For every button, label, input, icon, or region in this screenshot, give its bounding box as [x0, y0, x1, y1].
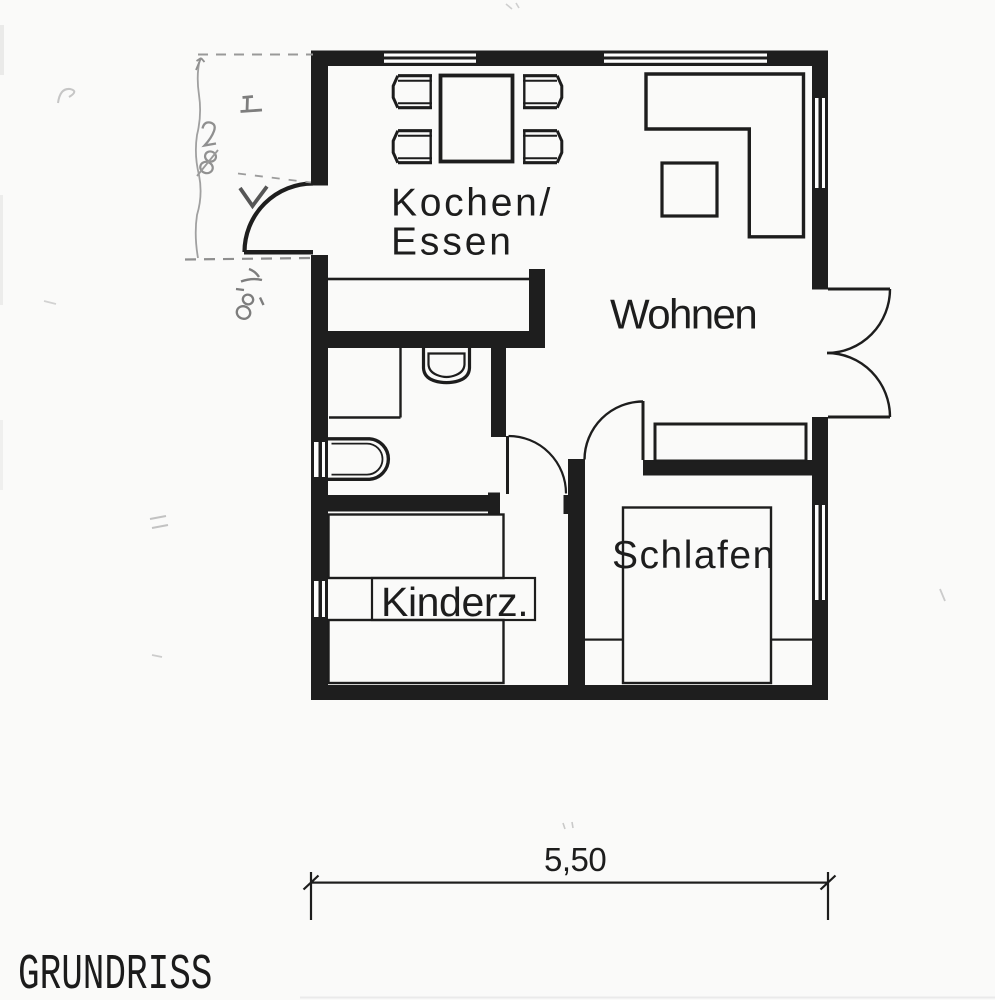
svg-text:5,50: 5,50 [544, 841, 606, 878]
svg-text:Kinderz.: Kinderz. [381, 579, 528, 625]
svg-text:Kochen/: Kochen/ [391, 182, 553, 225]
svg-text:Schlafen: Schlafen [612, 534, 776, 577]
svg-text:Wohnen: Wohnen [610, 291, 756, 338]
svg-text:GRUNDRISS: GRUNDRISS [18, 948, 212, 1000]
svg-text:Essen: Essen [391, 221, 514, 264]
